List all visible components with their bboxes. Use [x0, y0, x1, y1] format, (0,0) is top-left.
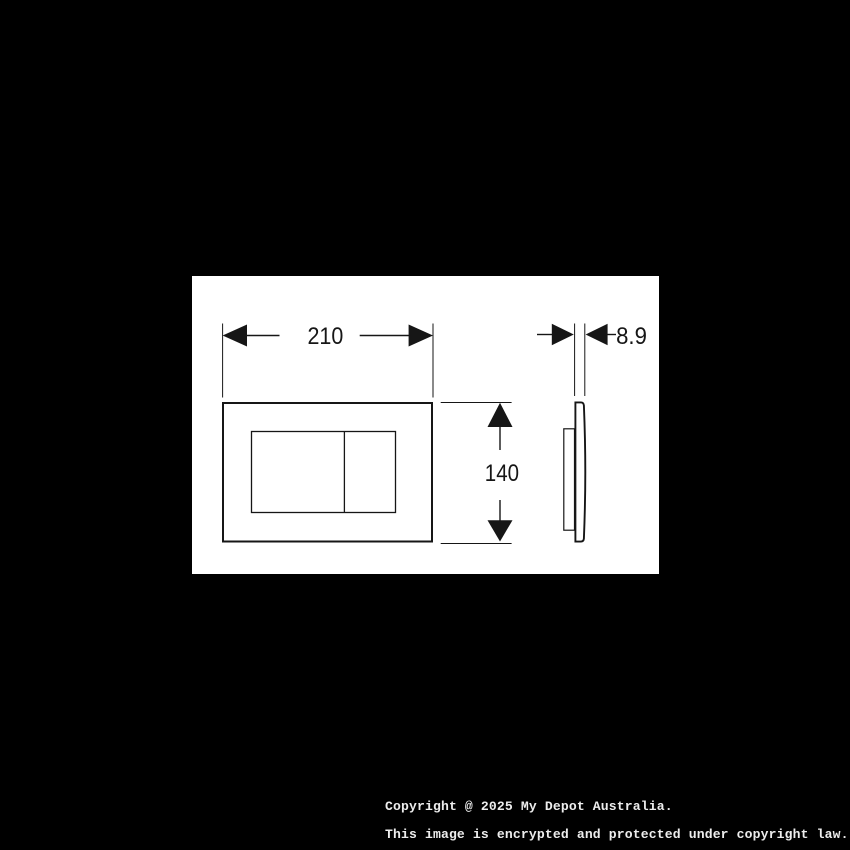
svg-text:8.9: 8.9: [616, 324, 647, 350]
svg-text:140: 140: [485, 461, 519, 487]
svg-text:210: 210: [308, 324, 344, 350]
